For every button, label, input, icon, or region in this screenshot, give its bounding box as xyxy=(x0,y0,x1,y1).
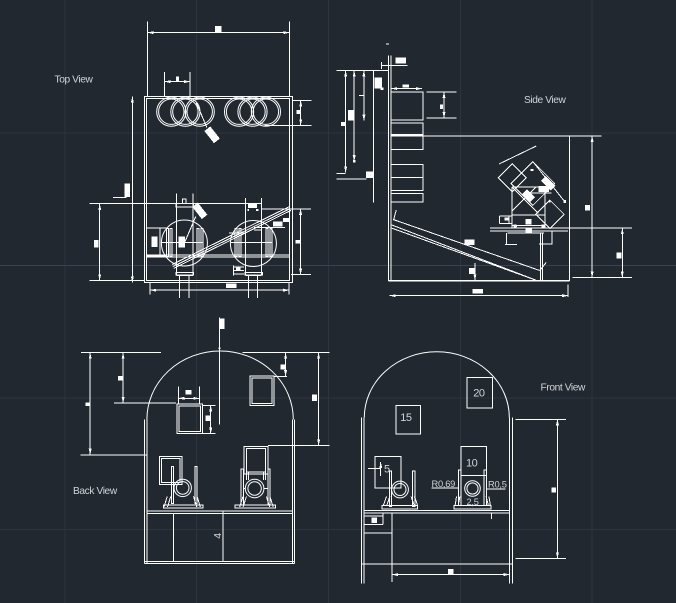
svg-text:2,5: 2,5 xyxy=(467,497,479,507)
svg-text:10: 10 xyxy=(466,458,478,470)
svg-text:20: 20 xyxy=(473,388,485,400)
svg-text:Front View: Front View xyxy=(541,382,587,393)
svg-text:Back View: Back View xyxy=(73,486,118,497)
svg-text:Top View: Top View xyxy=(55,75,94,86)
svg-text:Side View: Side View xyxy=(524,95,567,106)
svg-text:15: 15 xyxy=(400,412,412,424)
svg-text:R0,5: R0,5 xyxy=(488,479,507,489)
svg-text:R0,69: R0,69 xyxy=(432,479,456,489)
svg-text:4: 4 xyxy=(212,533,224,539)
